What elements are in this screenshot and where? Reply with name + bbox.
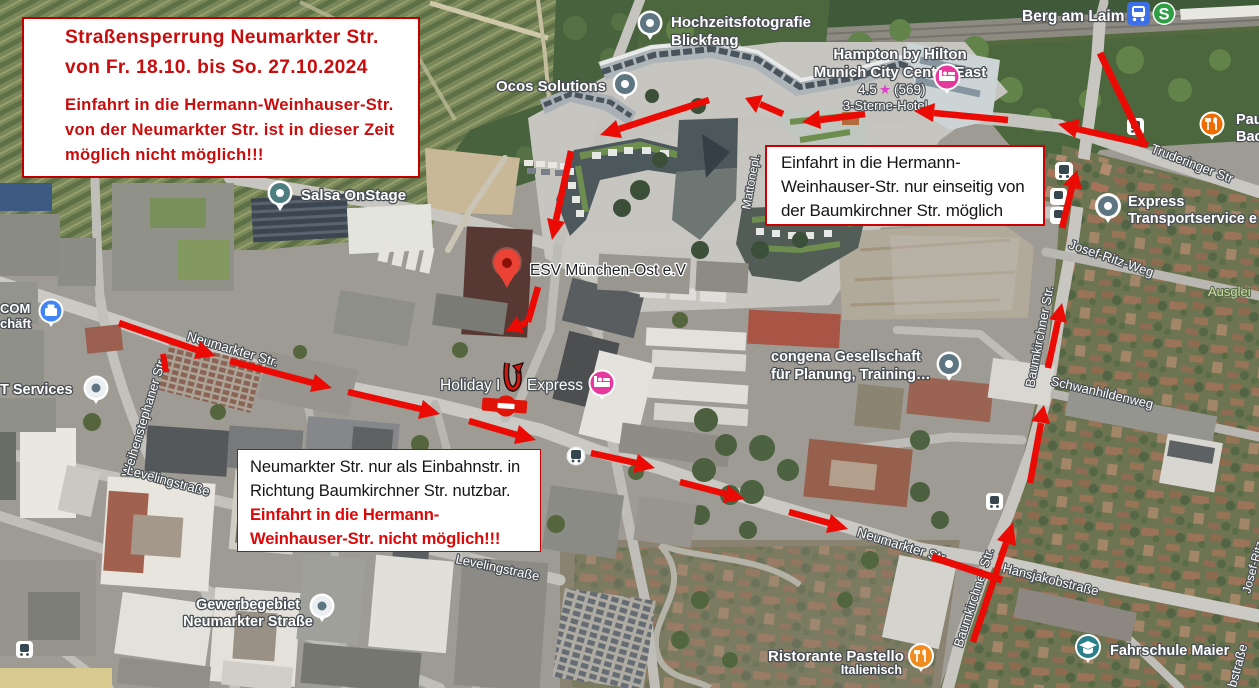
svg-text:Pau: Pau [1236, 112, 1259, 128]
svg-text:Fahrschule Maier: Fahrschule Maier [1110, 643, 1230, 659]
svg-text:Transportservice e: Transportservice e [1128, 211, 1257, 227]
svg-text:(569): (569) [894, 82, 926, 97]
svg-text:ESV München-Ost e.V: ESV München-Ost e.V [530, 262, 687, 279]
svg-text:Hampton by Hilton: Hampton by Hilton [833, 46, 966, 63]
svg-text:Salsa OnStage: Salsa OnStage [301, 187, 406, 204]
svg-text:Italienisch: Italienisch [841, 663, 902, 677]
svg-text:Ocos Solutions: Ocos Solutions [496, 78, 606, 95]
svg-text:★: ★ [879, 82, 891, 97]
svg-text:S: S [1158, 6, 1169, 24]
svg-text:congena Gesellschaft: congena Gesellschaft [771, 349, 921, 365]
svg-text:Gewerbegebiet: Gewerbegebiet [196, 597, 300, 613]
svg-text:für Planung, Training…: für Planung, Training… [771, 367, 931, 383]
svg-text:Ausglei: Ausglei [1208, 284, 1251, 299]
svg-text:chäft: chäft [0, 316, 32, 331]
svg-text:Express: Express [1128, 194, 1184, 210]
svg-text:Bac: Bac [1236, 129, 1259, 145]
svg-text:Hochzeitsfotografie: Hochzeitsfotografie [671, 14, 811, 31]
svg-text:Neumarkter Straße: Neumarkter Straße [183, 614, 313, 630]
svg-text:4.5: 4.5 [858, 82, 877, 97]
svg-text:T Services: T Services [0, 382, 73, 398]
svg-text:Blickfang: Blickfang [671, 32, 739, 49]
svg-text:COM: COM [0, 301, 30, 316]
svg-text:Express: Express [527, 377, 583, 394]
svg-text:Berg am Laim: Berg am Laim [1022, 8, 1125, 25]
svg-text:Holiday I: Holiday I [440, 377, 500, 394]
